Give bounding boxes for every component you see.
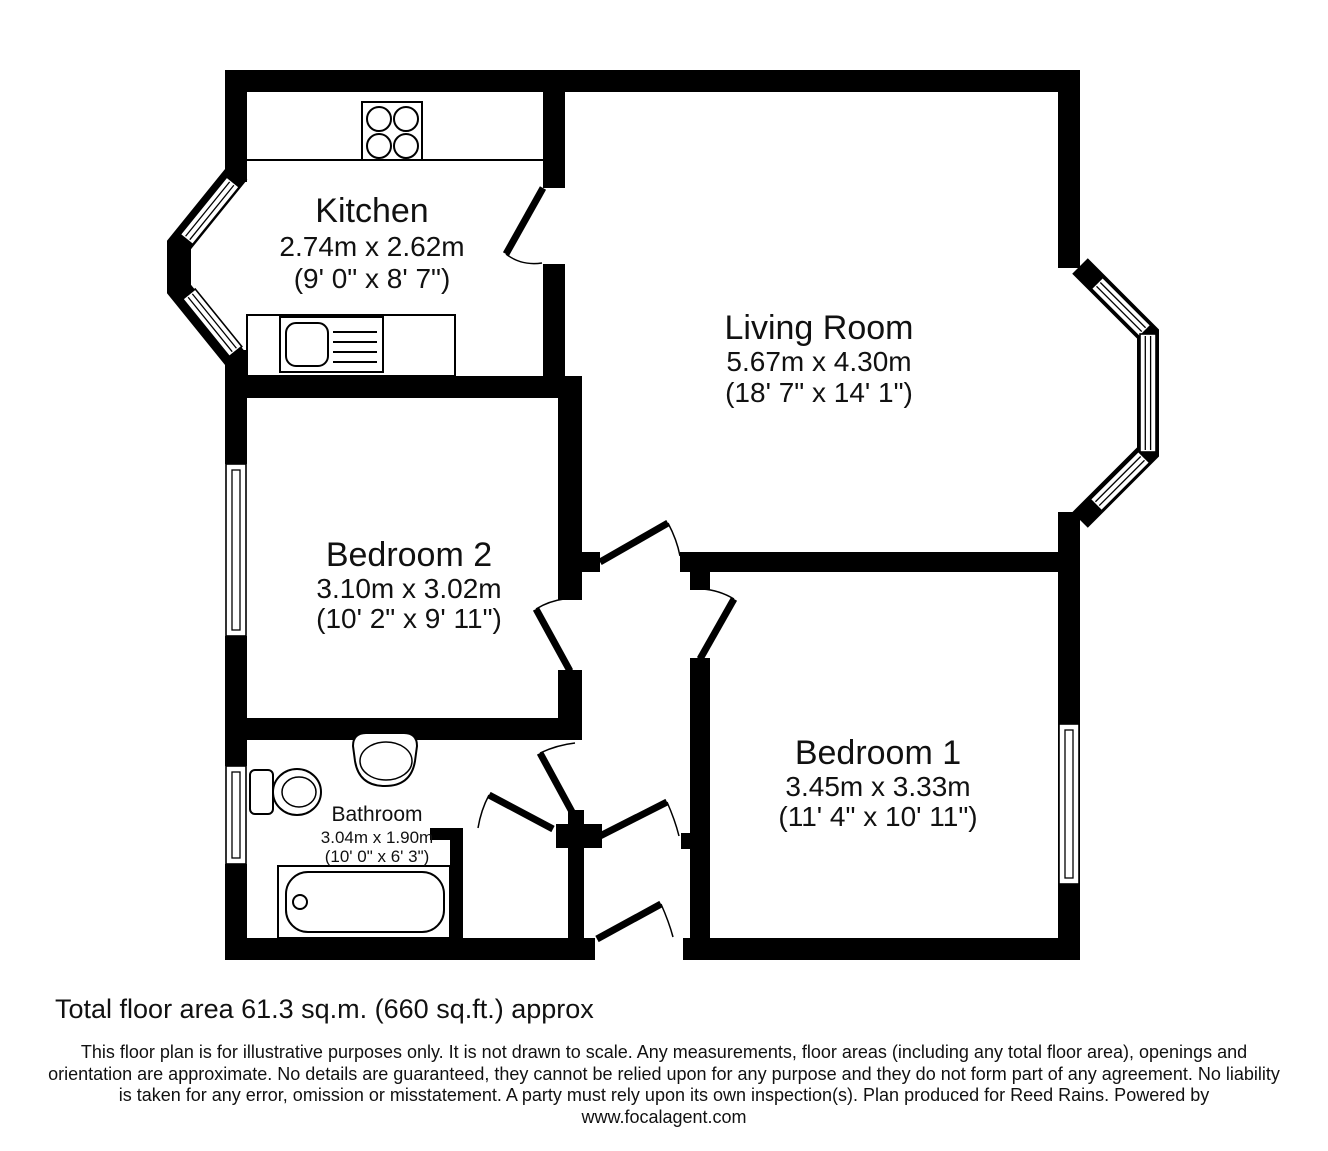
- bedroom2-name: Bedroom 2: [326, 536, 492, 574]
- stove-icon: [362, 102, 422, 160]
- wall-segment: [228, 70, 1080, 92]
- bedroom1-window: [1059, 724, 1079, 884]
- bathroom-window: [226, 766, 246, 864]
- bathroom-door: [540, 743, 577, 821]
- bedroom2-metric: 3.10m x 3.02m: [316, 573, 501, 604]
- wall-segment: [225, 864, 247, 960]
- toilet-icon: [250, 769, 321, 815]
- wall-segment: [568, 846, 584, 940]
- wall-segment: [1058, 70, 1080, 268]
- kitchen-sink-icon: [247, 315, 455, 376]
- kitchen-name: Kitchen: [315, 192, 428, 230]
- wall-segment: [228, 938, 595, 960]
- wall-segment: [558, 670, 582, 718]
- bedroom1-label: Bedroom 1 3.45m x 3.33m (11' 4" x 10' 11…: [778, 734, 977, 832]
- wall-segment: [543, 92, 565, 188]
- living-room-metric: 5.67m x 4.30m: [726, 346, 911, 377]
- basin-icon: [353, 733, 417, 786]
- website-link: www.focalagent.com: [42, 1107, 1286, 1129]
- bedroom1-metric: 3.45m x 3.33m: [785, 771, 970, 802]
- bedroom1-door: [700, 589, 734, 659]
- legal-disclaimer: This floor plan is for illustrative purp…: [42, 1042, 1286, 1128]
- wall-segment: [680, 552, 1060, 572]
- living-room-imperial: (18' 7" x 14' 1"): [725, 377, 913, 408]
- bay-window-middle: [1140, 334, 1156, 452]
- wall-segment: [582, 552, 600, 572]
- bathroom-name: Bathroom: [331, 803, 422, 826]
- bedroom2-window: [226, 464, 246, 636]
- bedroom1-name: Bedroom 1: [795, 734, 961, 772]
- wall-segment: [430, 828, 463, 840]
- kitchen-label: Kitchen 2.74m x 2.62m (9' 0" x 8' 7"): [279, 192, 464, 294]
- disclaimer-text: This floor plan is for illustrative purp…: [48, 1042, 1280, 1105]
- wall-segment: [690, 658, 710, 938]
- floor-plan-page: Kitchen 2.74m x 2.62m (9' 0" x 8' 7") Li…: [0, 0, 1328, 1151]
- entry-door: [597, 904, 673, 939]
- bathroom-label: Bathroom 3.04m x 1.90m (10' 0" x 6' 3"): [321, 803, 433, 866]
- bay-window-upper: [1091, 277, 1150, 336]
- total-floor-area: Total floor area 61.3 sq.m. (660 sq.ft.)…: [55, 994, 594, 1025]
- living-room-label: Living Room 5.67m x 4.30m (18' 7" x 14' …: [725, 309, 914, 408]
- kitchen-door: [506, 188, 543, 264]
- kitchen-bay-window-upper: [180, 177, 239, 245]
- wall-segment: [681, 833, 690, 849]
- wall-segment: [690, 552, 710, 590]
- bay-window-lower: [1090, 451, 1149, 510]
- wall-segment: [683, 938, 1080, 960]
- bedroom2-label: Bedroom 2 3.10m x 3.02m (10' 2" x 9' 11"…: [316, 536, 502, 634]
- wall-segment: [558, 398, 582, 600]
- bedroom2-imperial: (10' 2" x 9' 11"): [316, 603, 502, 634]
- cupboard-door: [478, 795, 553, 829]
- hall-door: [600, 802, 679, 836]
- bathroom-metric: 3.04m x 1.90m: [321, 828, 433, 847]
- bedroom2-door: [536, 599, 570, 671]
- bedroom1-imperial: (11' 4" x 10' 11"): [778, 801, 977, 832]
- wall-segment: [225, 636, 247, 766]
- bathroom-imperial: (10' 0" x 6' 3"): [325, 847, 430, 866]
- bathtub-icon: [278, 866, 450, 938]
- floor-plan-drawing: Kitchen 2.74m x 2.62m (9' 0" x 8' 7") Li…: [0, 0, 1328, 980]
- living-room-door: [600, 523, 680, 562]
- kitchen-imperial: (9' 0" x 8' 7"): [294, 263, 451, 294]
- wall-segment: [247, 376, 582, 398]
- kitchen-metric: 2.74m x 2.62m: [279, 231, 464, 262]
- living-room-name: Living Room: [725, 309, 914, 347]
- wall-segment: [450, 828, 463, 938]
